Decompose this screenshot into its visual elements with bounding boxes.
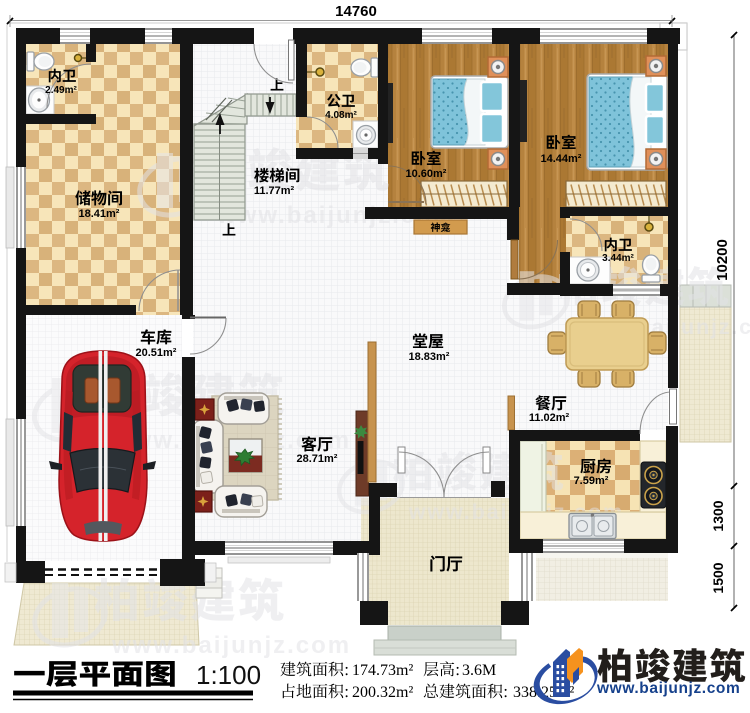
svg-text:3.6M: 3.6M: [462, 662, 496, 679]
svg-text:1300: 1300: [710, 500, 726, 531]
svg-text:14760: 14760: [335, 3, 377, 20]
svg-text:1:100: 1:100: [196, 660, 261, 690]
svg-text:20.51m²: 20.51m²: [136, 347, 177, 359]
svg-text:4.08m²: 4.08m²: [325, 110, 357, 121]
svg-text:18.83m²: 18.83m²: [409, 351, 450, 363]
svg-text:18.41m²: 18.41m²: [79, 208, 120, 220]
svg-text:1500: 1500: [710, 562, 726, 593]
svg-text:10.60m²: 10.60m²: [406, 168, 447, 180]
svg-text:200.32m²: 200.32m²: [352, 684, 413, 701]
svg-text:11.02m²: 11.02m²: [529, 412, 570, 424]
svg-text:10200: 10200: [714, 239, 731, 281]
svg-text:174.73m²: 174.73m²: [352, 662, 413, 679]
svg-text:www.baijunjz.com: www.baijunjz.com: [111, 632, 351, 659]
svg-text:www.baijunjz.com: www.baijunjz.com: [596, 680, 740, 697]
svg-text:2.49m²: 2.49m²: [45, 85, 77, 96]
svg-text:3.44m²: 3.44m²: [602, 253, 634, 264]
svg-text:14.44m²: 14.44m²: [541, 153, 582, 165]
svg-text:7.59m²: 7.59m²: [574, 475, 609, 487]
svg-text:11.77m²: 11.77m²: [254, 185, 295, 197]
svg-text:28.71m²: 28.71m²: [297, 453, 338, 465]
